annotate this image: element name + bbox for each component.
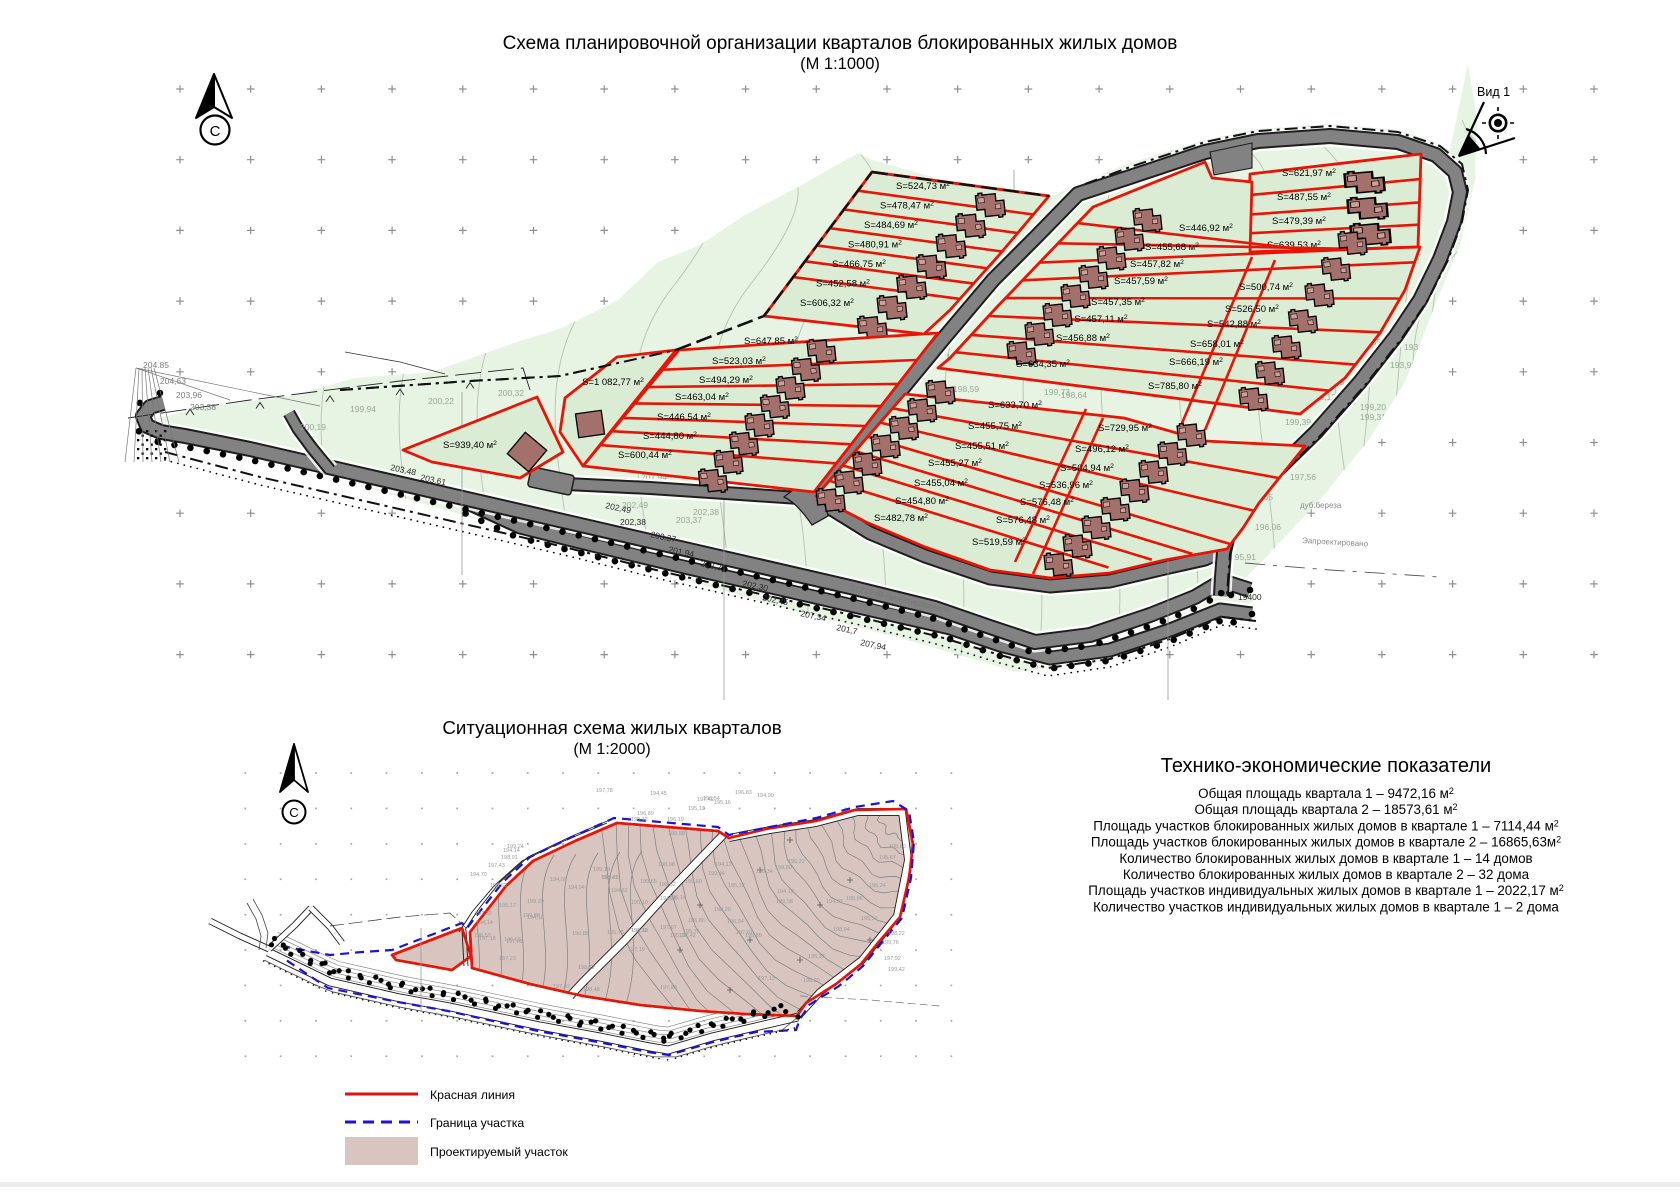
svg-text:C: C [210, 123, 221, 140]
svg-text:200,32: 200,32 [498, 388, 524, 398]
svg-text:S=455,04 м2: S=455,04 м2 [914, 478, 968, 489]
svg-text:196,20: 196,20 [803, 978, 820, 984]
svg-text:S=542,88 м2: S=542,88 м2 [1207, 319, 1261, 330]
svg-text:196,19: 196,19 [667, 817, 684, 823]
svg-text:194,97: 194,97 [826, 899, 843, 905]
svg-text:198,41: 198,41 [601, 875, 618, 881]
svg-text:S=600,44 м2: S=600,44 м2 [618, 450, 672, 461]
svg-text:дуб.береза: дуб.береза [1300, 501, 1342, 510]
svg-text:S=444,80 м2: S=444,80 м2 [643, 431, 697, 442]
svg-text:199,42: 199,42 [888, 967, 905, 973]
svg-text:199,94: 199,94 [350, 404, 376, 414]
svg-text:196,89: 196,89 [572, 931, 589, 937]
svg-text:198,20: 198,20 [714, 907, 731, 913]
svg-text:194,18: 194,18 [527, 915, 544, 921]
svg-text:Общая площадь квартала 1 – 947: Общая площадь квартала 1 – 9472,16 м2 [1198, 786, 1454, 801]
svg-text:Общая площадь квартала 2 – 185: Общая площадь квартала 2 – 18573,61 м2 [1194, 802, 1457, 817]
svg-text:197,87: 197,87 [553, 984, 570, 990]
svg-text:204,63: 204,63 [160, 376, 186, 386]
svg-text:S=480,91 м2: S=480,91 м2 [848, 240, 902, 251]
svg-text:195,17: 195,17 [499, 903, 516, 909]
svg-text:195,67: 195,67 [879, 855, 896, 861]
svg-text:199,39: 199,39 [1285, 417, 1311, 427]
svg-text:198,12: 198,12 [631, 817, 648, 823]
svg-text:196,63: 196,63 [504, 937, 521, 943]
svg-text:199,80: 199,80 [775, 865, 792, 871]
svg-text:198,72: 198,72 [578, 965, 595, 971]
svg-text:S=484,69 м2: S=484,69 м2 [864, 220, 918, 231]
svg-text:Проектируемый участок: Проектируемый участок [430, 1145, 568, 1159]
svg-text:198,59: 198,59 [953, 384, 979, 394]
svg-text:199,44: 199,44 [708, 871, 725, 877]
svg-text:Схема планировочной организаци: Схема планировочной организации квартало… [503, 33, 1178, 54]
svg-text:196,06: 196,06 [1255, 522, 1281, 532]
svg-text:197,32: 197,32 [475, 911, 492, 917]
svg-text:S=478,47 м2: S=478,47 м2 [880, 201, 934, 212]
svg-text:Площадь участков блокированных: Площадь участков блокированных жилых дом… [1093, 818, 1559, 833]
svg-text:197,83: 197,83 [660, 985, 677, 991]
svg-text:S=496,12 м2: S=496,12 м2 [1075, 444, 1129, 455]
svg-text:199,24: 199,24 [507, 844, 524, 850]
svg-text:198,64: 198,64 [1061, 390, 1087, 400]
svg-text:196,86: 196,86 [688, 918, 705, 924]
svg-text:Красная линия: Красная линия [430, 1088, 515, 1102]
svg-text:S=457,11 м2: S=457,11 м2 [1074, 314, 1127, 325]
svg-text:196,54: 196,54 [703, 796, 720, 802]
svg-text:198,94: 198,94 [833, 927, 850, 933]
svg-text:202,38: 202,38 [620, 517, 646, 527]
svg-text:194,69: 194,69 [550, 877, 567, 883]
svg-text:197,23: 197,23 [499, 956, 516, 962]
svg-text:S=729,95 м2: S=729,95 м2 [1098, 423, 1152, 434]
svg-text:203,38: 203,38 [190, 402, 216, 412]
svg-text:197,43: 197,43 [488, 863, 505, 869]
svg-text:198,91: 198,91 [501, 855, 518, 861]
svg-text:198,34: 198,34 [756, 869, 773, 875]
svg-text:195,76: 195,76 [607, 930, 624, 936]
svg-text:S=454,80 м2: S=454,80 м2 [895, 496, 949, 507]
svg-text:198,83: 198,83 [490, 883, 507, 889]
svg-text:(М 1:1000): (М 1:1000) [800, 55, 880, 73]
svg-text:Площадь участков блокированных: Площадь участков блокированных жилых дом… [1091, 835, 1561, 850]
svg-text:S=523,03 м2: S=523,03 м2 [712, 356, 766, 367]
svg-text:Ситуационная схема жилых кварт: Ситуационная схема жилых кварталов [442, 717, 781, 738]
svg-text:Технико-экономические показате: Технико-экономические показатели [1161, 755, 1491, 777]
svg-text:S=504,94 м2: S=504,94 м2 [1060, 463, 1114, 474]
svg-text:S=647,85 м2: S=647,85 м2 [744, 336, 798, 347]
svg-text:194,19: 194,19 [777, 889, 794, 895]
svg-text:Количество блокированных жилых: Количество блокированных жилых домов в к… [1119, 851, 1532, 866]
svg-text:196,83: 196,83 [735, 790, 752, 796]
svg-text:198,48: 198,48 [583, 987, 600, 993]
svg-text:195,13: 195,13 [688, 806, 705, 812]
svg-text:S=457,82 м2: S=457,82 м2 [1130, 259, 1184, 270]
svg-text:194,70: 194,70 [470, 872, 487, 878]
svg-text:S=536,96 м2: S=536,96 м2 [1039, 480, 1093, 491]
svg-text:199,65: 199,65 [640, 879, 657, 885]
svg-text:S=456,88 м2: S=456,88 м2 [1056, 333, 1110, 344]
svg-text:204.85: 204.85 [143, 360, 169, 370]
svg-text:199,18: 199,18 [593, 867, 610, 873]
svg-text:195,89: 195,89 [745, 933, 762, 939]
svg-text:199,60: 199,60 [685, 879, 702, 885]
svg-text:S=634,35 м2: S=634,35 м2 [1016, 359, 1070, 370]
svg-text:195,51: 195,51 [861, 916, 878, 922]
svg-text:195,96: 195,96 [846, 896, 863, 902]
svg-text:203,37: 203,37 [676, 515, 702, 525]
svg-text:S=526,50 м2: S=526,50 м2 [1225, 304, 1279, 315]
svg-text:197,42: 197,42 [679, 933, 696, 939]
svg-text:197,18: 197,18 [479, 936, 496, 942]
svg-text:199,98: 199,98 [776, 899, 793, 905]
svg-text:194,45: 194,45 [650, 791, 667, 797]
svg-text:195,12: 195,12 [728, 883, 745, 889]
svg-text:S=455,68 м2: S=455,68 м2 [1145, 242, 1199, 253]
svg-text:194,94: 194,94 [568, 885, 585, 891]
svg-text:S=576,48 м2: S=576,48 м2 [996, 515, 1050, 526]
svg-text:196,94: 196,94 [727, 919, 744, 925]
svg-text:C: C [289, 805, 298, 820]
svg-text:S=455,75 м2: S=455,75 м2 [968, 421, 1022, 432]
svg-text:S=482,78 м2: S=482,78 м2 [874, 513, 928, 524]
svg-text:S=576,48 м2: S=576,48 м2 [1020, 497, 1074, 508]
svg-text:197,67: 197,67 [660, 925, 677, 931]
svg-text:197,13: 197,13 [758, 976, 775, 982]
svg-text:S=500,74 м2: S=500,74 м2 [1239, 282, 1293, 293]
svg-text:Количество участков индивидуал: Количество участков индивидуальных жилых… [1093, 899, 1559, 914]
svg-text:S=446,54 м2: S=446,54 м2 [657, 412, 711, 423]
svg-text:199,76: 199,76 [882, 940, 899, 946]
svg-text:198,98: 198,98 [658, 862, 675, 868]
svg-text:195,60: 195,60 [889, 844, 906, 850]
svg-text:S=606,32 м2: S=606,32 м2 [800, 298, 854, 309]
svg-text:S=519,59 м2: S=519,59 м2 [972, 537, 1026, 548]
svg-text:197,92: 197,92 [884, 956, 901, 962]
svg-text:194,26: 194,26 [660, 896, 677, 902]
svg-text:S=455,51 м2: S=455,51 м2 [955, 441, 1009, 452]
svg-text:S=479,39 м2: S=479,39 м2 [1272, 216, 1326, 227]
svg-text:Количество блокированных жилых: Количество блокированных жилых домов в к… [1123, 867, 1530, 882]
svg-text:S=466,75 м2: S=466,75 м2 [832, 259, 886, 270]
svg-text:S=463,04 м2: S=463,04 м2 [675, 392, 729, 403]
svg-text:195,24: 195,24 [869, 883, 886, 889]
svg-text:Площадь участков индивидуальны: Площадь участков индивидуальных жилых до… [1088, 883, 1563, 898]
svg-text:194,90: 194,90 [757, 793, 774, 799]
svg-text:S=633,70 м2: S=633,70 м2 [988, 400, 1042, 411]
svg-text:S=446,92 м2: S=446,92 м2 [1179, 223, 1233, 234]
svg-text:203,96: 203,96 [176, 390, 202, 400]
svg-text:S=939,40 м2: S=939,40 м2 [443, 440, 497, 451]
svg-text:198,22: 198,22 [888, 931, 905, 937]
svg-text:200,22: 200,22 [428, 396, 454, 406]
svg-text:195,62: 195,62 [659, 882, 676, 888]
svg-text:Граница участка: Граница участка [430, 1116, 524, 1130]
svg-text:194,14: 194,14 [476, 920, 493, 926]
svg-text:S=455,27 м2: S=455,27 м2 [928, 458, 982, 469]
svg-text:194,12: 194,12 [715, 862, 732, 868]
svg-text:197,78: 197,78 [596, 788, 613, 794]
svg-text:S=457,59 м2: S=457,59 м2 [1114, 276, 1168, 287]
svg-text:S=487,55 м2: S=487,55 м2 [1277, 192, 1331, 203]
svg-text:S=494,29 м2: S=494,29 м2 [699, 375, 753, 386]
svg-text:197,56: 197,56 [1290, 472, 1316, 482]
svg-text:S=658,01 м2: S=658,01 м2 [1190, 339, 1244, 350]
svg-text:S=785,80 м2: S=785,80 м2 [1148, 381, 1202, 392]
svg-text:195,10: 195,10 [631, 900, 648, 906]
svg-text:Вид 1: Вид 1 [1477, 85, 1510, 99]
svg-text:196,36: 196,36 [631, 928, 648, 934]
svg-text:S=666,19 м2: S=666,19 м2 [1169, 357, 1223, 368]
svg-text:(М 1:2000): (М 1:2000) [573, 741, 650, 758]
svg-text:199,29: 199,29 [527, 899, 544, 905]
svg-text:200,19: 200,19 [300, 422, 326, 432]
svg-text:S=457,35 м2: S=457,35 м2 [1091, 297, 1145, 308]
svg-text:199,20: 199,20 [1360, 402, 1386, 412]
svg-text:S=621,97 м2: S=621,97 м2 [1282, 168, 1336, 179]
svg-text:194,62: 194,62 [611, 888, 628, 894]
svg-text:S=1 082,77 м2: S=1 082,77 м2 [582, 377, 644, 388]
svg-text:197,19: 197,19 [628, 947, 645, 953]
svg-text:195,37: 195,37 [808, 954, 825, 960]
svg-text:198,88: 198,88 [668, 831, 685, 837]
svg-text:S=452,58 м2: S=452,58 м2 [816, 279, 870, 290]
svg-text:19400: 19400 [1238, 592, 1262, 602]
